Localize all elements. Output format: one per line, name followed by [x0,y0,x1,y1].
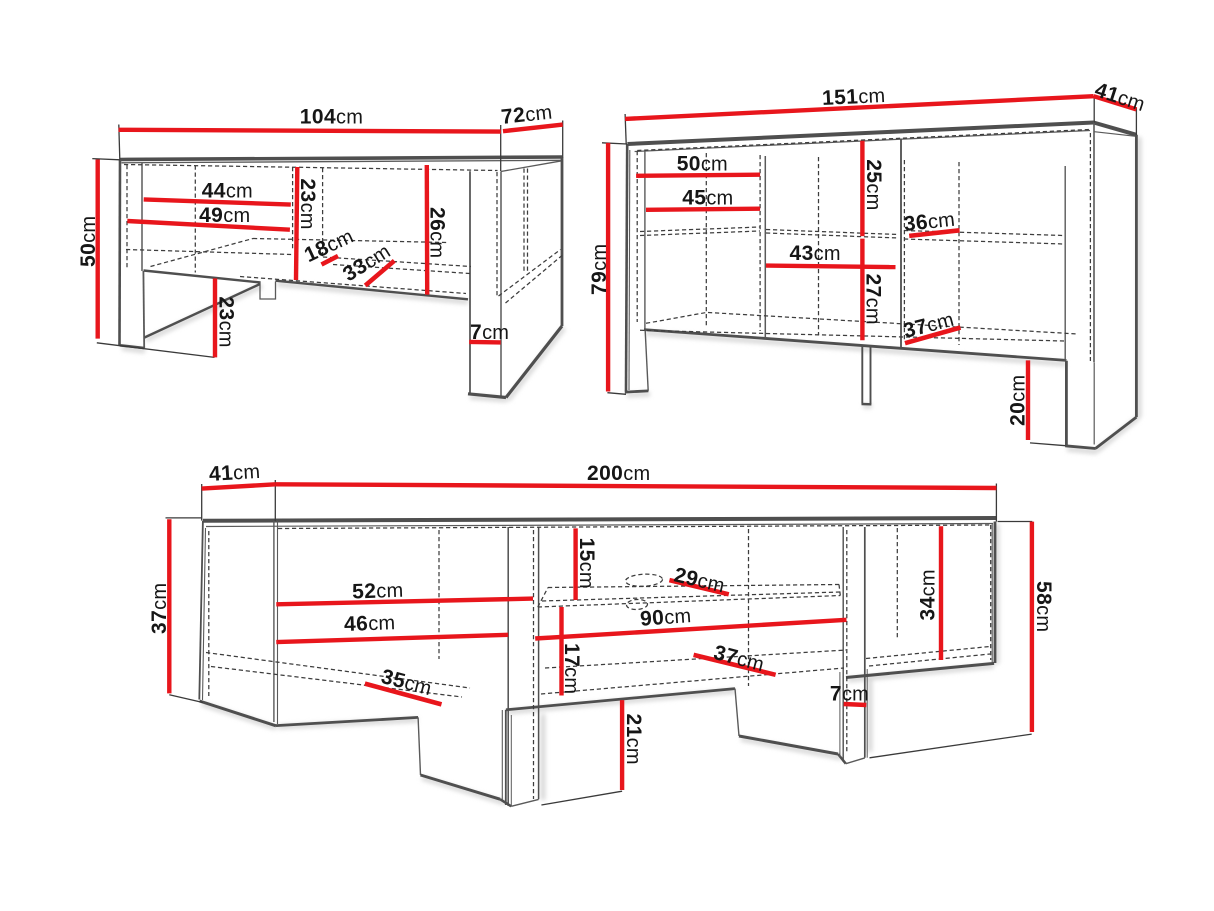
svg-text:58cm: 58cm [1032,581,1055,632]
svg-text:17cm: 17cm [560,643,583,694]
svg-text:49cm: 49cm [199,204,250,227]
svg-text:37cm: 37cm [148,583,171,634]
svg-text:200cm: 200cm [587,462,650,485]
svg-text:15cm: 15cm [575,538,598,589]
svg-text:43cm: 43cm [790,242,841,265]
svg-text:21cm: 21cm [622,714,645,765]
svg-text:46cm: 46cm [344,611,396,636]
svg-text:50cm: 50cm [677,152,728,175]
svg-text:52cm: 52cm [352,579,404,604]
svg-text:25cm: 25cm [862,159,885,210]
svg-text:23cm: 23cm [296,178,319,229]
svg-text:50cm: 50cm [77,216,100,267]
svg-text:27cm: 27cm [861,274,884,325]
svg-text:7cm: 7cm [830,682,869,705]
svg-text:45cm: 45cm [682,186,733,209]
svg-text:23cm: 23cm [215,296,238,347]
svg-text:20cm: 20cm [1007,375,1030,426]
svg-text:151cm: 151cm [822,84,886,110]
svg-text:79cm: 79cm [588,244,611,295]
svg-text:7cm: 7cm [470,321,509,344]
svg-text:26cm: 26cm [426,207,449,258]
svg-text:90cm: 90cm [639,604,692,631]
svg-text:34cm: 34cm [917,569,940,620]
svg-text:41cm: 41cm [208,460,261,486]
svg-text:104cm: 104cm [300,105,363,128]
svg-text:44cm: 44cm [202,180,253,203]
